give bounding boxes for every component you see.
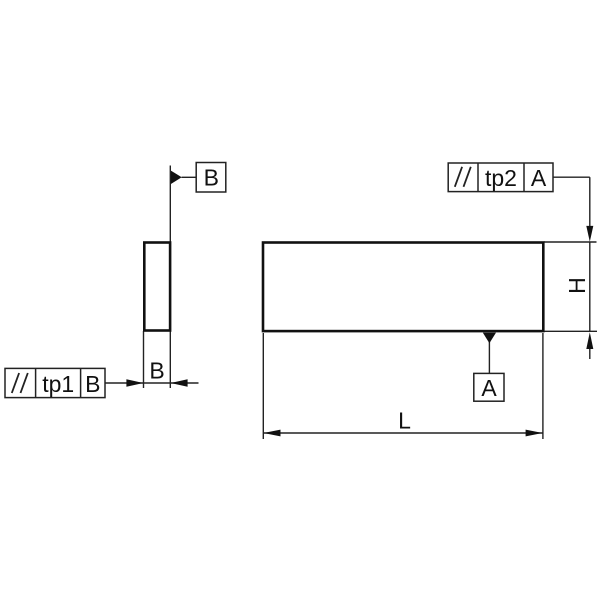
svg-text:tp2: tp2 [485,165,517,191]
svg-text:A: A [531,165,547,191]
svg-text:B: B [204,165,219,191]
svg-text:B: B [149,357,164,383]
svg-text:B: B [85,371,100,397]
svg-text:tp1: tp1 [42,371,74,397]
svg-text:A: A [481,375,497,401]
svg-text:L: L [398,408,411,434]
svg-text:H: H [564,277,590,294]
